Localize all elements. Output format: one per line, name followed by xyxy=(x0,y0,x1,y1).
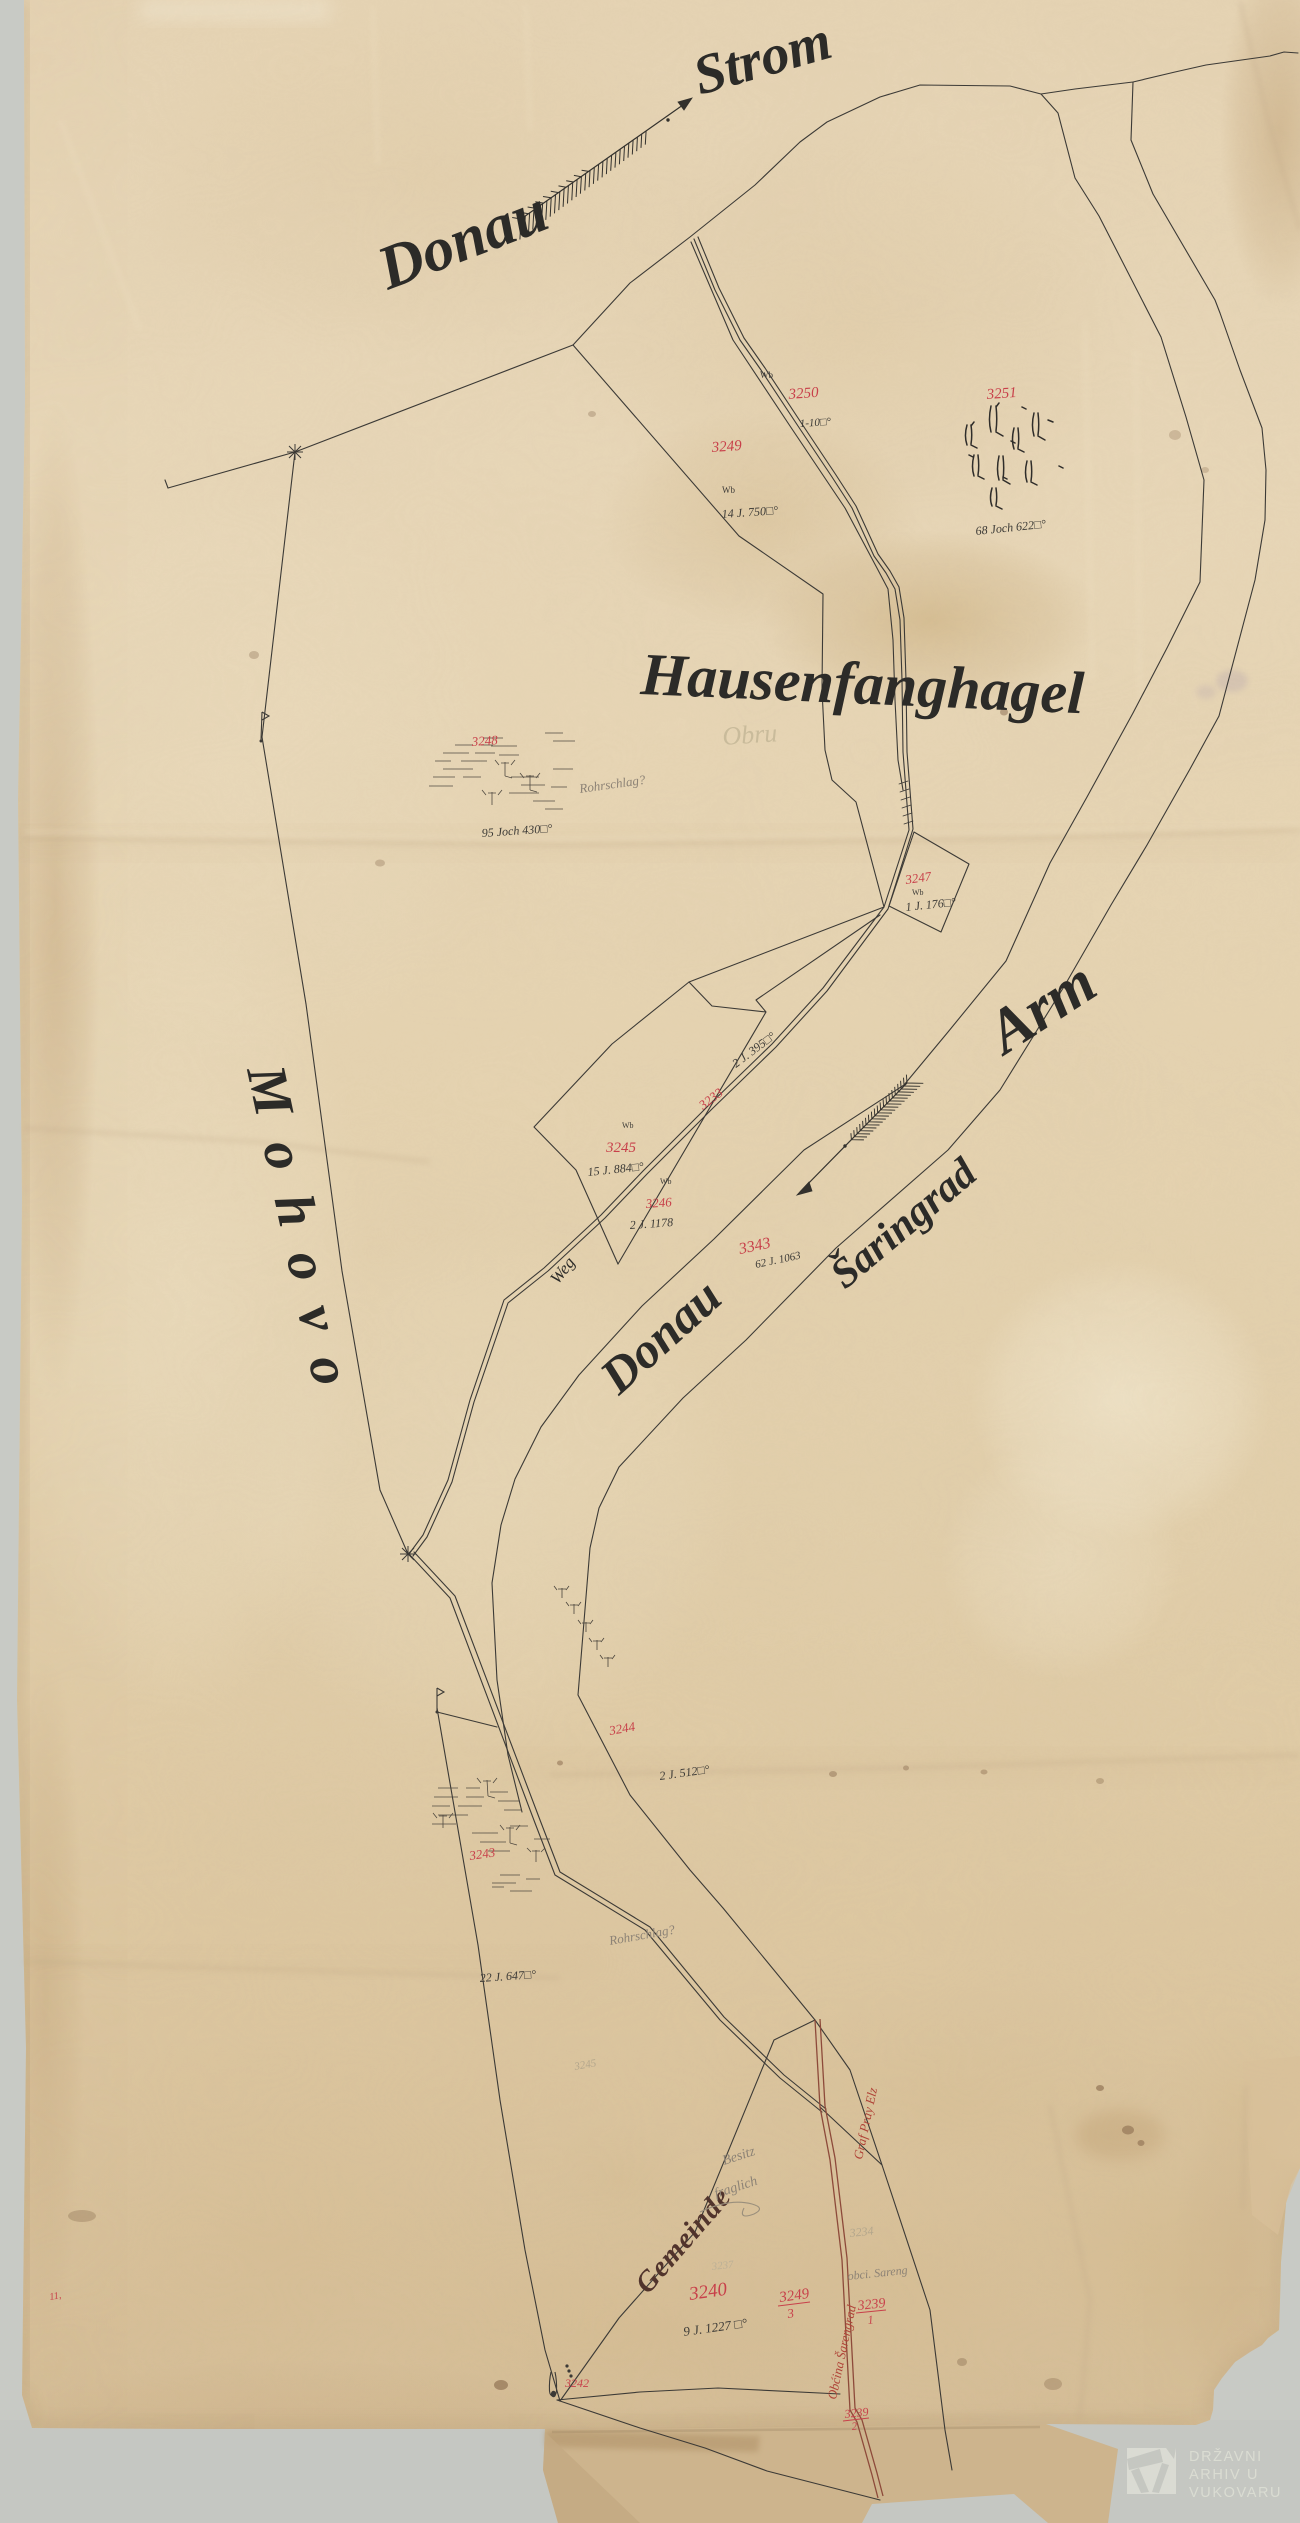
svg-text:3250: 3250 xyxy=(787,385,820,403)
svg-text:Wb: Wb xyxy=(722,485,735,495)
svg-text:DRŽAVNI: DRŽAVNI xyxy=(1189,2448,1263,2465)
svg-text:3246: 3246 xyxy=(644,1194,672,1211)
svg-text:1-10□°: 1-10□° xyxy=(799,416,832,430)
svg-text:3237: 3237 xyxy=(710,2259,735,2273)
svg-text:3248: 3248 xyxy=(470,732,498,749)
svg-text:3249: 3249 xyxy=(710,438,743,456)
svg-text:Wb: Wb xyxy=(760,370,773,380)
svg-text:3234: 3234 xyxy=(848,2224,874,2241)
svg-text:3245: 3245 xyxy=(605,1140,637,1156)
svg-text:Wb: Wb xyxy=(622,1121,634,1130)
svg-text:ARHIV U: ARHIV U xyxy=(1189,2467,1259,2483)
svg-text:3239: 3239 xyxy=(843,2405,869,2422)
svg-text:Wb: Wb xyxy=(660,1177,672,1186)
svg-text:VUKOVARU: VUKOVARU xyxy=(1189,2485,1282,2501)
svg-text:3242: 3242 xyxy=(564,2376,589,2390)
svg-text:Obru: Obru xyxy=(721,718,778,751)
svg-text:3251: 3251 xyxy=(985,385,1017,403)
svg-text:Wb: Wb xyxy=(912,888,924,897)
svg-text:11,: 11, xyxy=(49,2290,62,2303)
